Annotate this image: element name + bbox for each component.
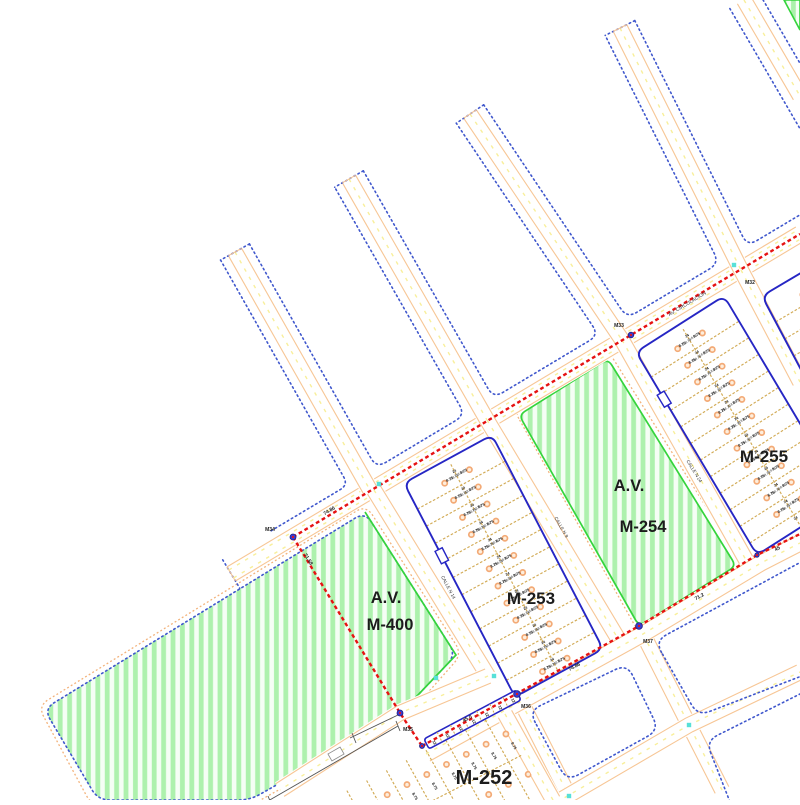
svg-text:A.V.: A.V. <box>614 477 645 495</box>
svg-text:M33: M33 <box>614 323 624 329</box>
svg-text:M36: M36 <box>521 704 531 710</box>
svg-text:M37: M37 <box>643 639 653 645</box>
svg-text:M-254: M-254 <box>620 518 668 536</box>
svg-text:M-253: M-253 <box>507 589 555 608</box>
svg-text:M-255: M-255 <box>740 447 788 466</box>
svg-text:M34: M34 <box>265 527 275 533</box>
svg-text:M-400: M-400 <box>367 616 414 634</box>
svg-text:M35: M35 <box>403 727 413 733</box>
svg-text:A.V.: A.V. <box>371 589 402 607</box>
svg-text:M32: M32 <box>745 280 755 286</box>
svg-text:M-252: M-252 <box>456 767 513 789</box>
